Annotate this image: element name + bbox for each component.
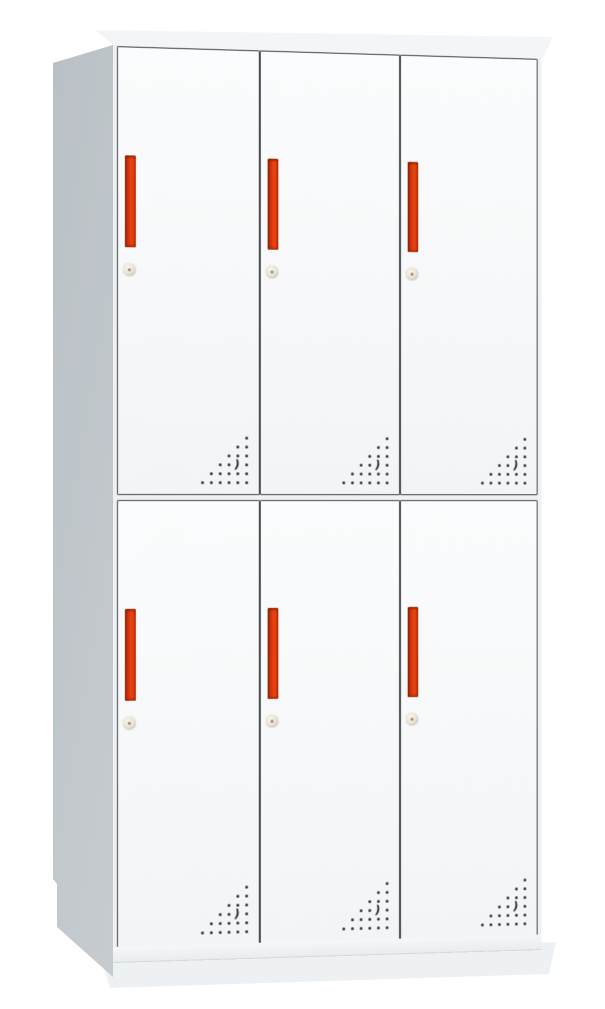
vent-hole xyxy=(515,922,518,925)
vent-crescent-mark: ) xyxy=(512,458,519,470)
vent-hole xyxy=(523,446,526,449)
vent-hole xyxy=(245,921,248,924)
vent-hole xyxy=(368,472,371,475)
vent-hole xyxy=(523,481,526,484)
key-lock xyxy=(266,714,279,727)
vent-hole xyxy=(490,481,493,484)
lock-keyhole xyxy=(411,717,414,720)
vent-hole xyxy=(219,463,222,466)
vent-hole xyxy=(490,472,493,475)
vent-hole xyxy=(507,905,510,908)
vent-hole xyxy=(245,481,248,484)
vent-hole xyxy=(523,878,526,881)
key-lock xyxy=(123,716,136,729)
door-grid: )))))) xyxy=(117,46,538,948)
vent-hole xyxy=(368,900,371,903)
vent-hole xyxy=(523,437,526,440)
vent-hole xyxy=(523,914,526,917)
door-handle xyxy=(408,162,419,252)
vent-hole xyxy=(481,923,484,926)
vent-hole xyxy=(377,481,380,484)
vent-hole xyxy=(236,895,239,898)
vent-hole xyxy=(245,903,248,906)
vent-crescent-mark: ) xyxy=(374,904,381,916)
vent-hole xyxy=(481,481,484,484)
vent-hole xyxy=(386,900,389,903)
vent-hole xyxy=(368,454,371,457)
vent-hole xyxy=(236,481,239,484)
locker-door-top-center: ) xyxy=(260,50,400,494)
vent-hole xyxy=(377,926,380,929)
vent-hole xyxy=(245,930,248,933)
vent-hole xyxy=(245,436,248,439)
vent-hole xyxy=(368,481,371,484)
vent-hole xyxy=(507,455,510,458)
vent-hole xyxy=(228,904,231,907)
vent-hole xyxy=(201,931,204,934)
vent-perforation: ) xyxy=(342,437,388,484)
locker-door-top-left: ) xyxy=(117,46,260,494)
vent-perforation: ) xyxy=(201,436,248,484)
vent-hole xyxy=(360,918,363,921)
vent-hole xyxy=(507,481,510,484)
door-handle xyxy=(268,607,279,698)
vent-hole xyxy=(507,896,510,899)
vent-hole xyxy=(498,914,501,917)
vent-hole xyxy=(245,894,248,897)
key-lock xyxy=(406,268,418,281)
vent-hole xyxy=(210,922,213,925)
vent-hole xyxy=(386,437,389,440)
vent-hole xyxy=(228,454,231,457)
door-handle xyxy=(125,608,136,700)
vent-hole xyxy=(228,922,231,925)
vent-hole xyxy=(386,917,389,920)
vent-hole xyxy=(228,472,231,475)
vent-hole xyxy=(210,931,213,934)
vent-hole xyxy=(523,472,526,475)
vent-hole xyxy=(377,891,380,894)
vent-hole xyxy=(386,454,389,457)
vent-hole xyxy=(351,481,354,484)
vent-hole xyxy=(507,914,510,917)
vent-hole xyxy=(236,930,239,933)
vent-hole xyxy=(498,905,501,908)
lock-keyhole xyxy=(411,273,414,276)
vent-hole xyxy=(210,481,213,484)
vent-hole xyxy=(386,882,389,885)
key-lock xyxy=(406,712,418,725)
vent-hole xyxy=(377,472,380,475)
vent-hole xyxy=(515,446,518,449)
vent-hole xyxy=(351,918,354,921)
vent-hole xyxy=(523,896,526,899)
vent-hole xyxy=(507,923,510,926)
vent-hole xyxy=(523,905,526,908)
vent-hole xyxy=(386,926,389,929)
door-handle xyxy=(408,606,419,696)
vent-hole xyxy=(386,891,389,894)
vent-hole xyxy=(351,927,354,930)
vent-hole xyxy=(507,464,510,467)
vent-hole xyxy=(386,463,389,466)
locker-door-bottom-center: ) xyxy=(260,500,400,944)
locker-door-bottom-left: ) xyxy=(117,500,260,948)
door-handle xyxy=(268,159,279,250)
vent-hole xyxy=(245,454,248,457)
key-lock xyxy=(123,263,136,276)
vent-hole xyxy=(498,464,501,467)
vent-hole xyxy=(228,913,231,916)
locker-door-top-right: ) xyxy=(400,55,538,495)
vent-hole xyxy=(368,909,371,912)
vent-hole xyxy=(523,887,526,890)
vent-hole xyxy=(360,472,363,475)
vent-hole xyxy=(386,472,389,475)
product-photo: )))))) xyxy=(0,0,605,1009)
vent-hole xyxy=(515,914,518,917)
vent-perforation: ) xyxy=(481,878,526,926)
vent-hole xyxy=(386,908,389,911)
vent-perforation: ) xyxy=(201,886,248,935)
cabinet-front: )))))) xyxy=(113,45,541,963)
vent-crescent-mark: ) xyxy=(512,900,519,912)
vent-hole xyxy=(507,472,510,475)
vent-hole xyxy=(210,472,213,475)
vent-hole xyxy=(228,931,231,934)
vent-hole xyxy=(377,446,380,449)
vent-hole xyxy=(360,909,363,912)
vent-hole xyxy=(219,481,222,484)
vent-hole xyxy=(360,481,363,484)
vent-hole xyxy=(368,927,371,930)
vent-hole xyxy=(236,472,239,475)
vent-hole xyxy=(351,472,354,475)
vent-hole xyxy=(245,912,248,915)
vent-hole xyxy=(245,886,248,889)
vent-hole xyxy=(228,463,231,466)
vent-perforation: ) xyxy=(481,437,526,484)
vent-hole xyxy=(360,463,363,466)
lock-keyhole xyxy=(271,719,274,722)
vent-hole xyxy=(245,463,248,466)
vent-hole xyxy=(386,446,389,449)
vent-hole xyxy=(201,481,204,484)
vent-hole xyxy=(236,445,239,448)
vent-hole xyxy=(368,918,371,921)
vent-hole xyxy=(360,927,363,930)
vent-hole xyxy=(523,455,526,458)
vent-hole xyxy=(498,923,501,926)
locker-door-bottom-right: ) xyxy=(400,500,538,940)
vent-perforation: ) xyxy=(342,882,388,930)
vent-hole xyxy=(515,887,518,890)
vent-crescent-mark: ) xyxy=(233,907,240,920)
vent-crescent-mark: ) xyxy=(374,458,381,471)
door-handle xyxy=(125,155,136,247)
vent-hole xyxy=(515,481,518,484)
vent-hole xyxy=(219,913,222,916)
lock-keyhole xyxy=(128,721,131,724)
vent-hole xyxy=(219,922,222,925)
vent-hole xyxy=(342,481,345,484)
vent-hole xyxy=(236,921,239,924)
vent-hole xyxy=(523,922,526,925)
vent-hole xyxy=(490,923,493,926)
vent-hole xyxy=(523,464,526,467)
vent-hole xyxy=(490,914,493,917)
vent-hole xyxy=(368,463,371,466)
lock-keyhole xyxy=(128,268,131,271)
vent-crescent-mark: ) xyxy=(233,457,240,470)
vent-hole xyxy=(219,931,222,934)
vent-hole xyxy=(498,481,501,484)
vent-hole xyxy=(515,472,518,475)
vent-hole xyxy=(245,472,248,475)
vent-hole xyxy=(219,472,222,475)
vent-hole xyxy=(342,927,345,930)
vent-hole xyxy=(386,481,389,484)
vent-hole xyxy=(377,918,380,921)
vent-hole xyxy=(245,445,248,448)
vent-hole xyxy=(498,472,501,475)
vent-hole xyxy=(228,481,231,484)
key-lock xyxy=(266,265,279,278)
lock-keyhole xyxy=(271,270,274,273)
